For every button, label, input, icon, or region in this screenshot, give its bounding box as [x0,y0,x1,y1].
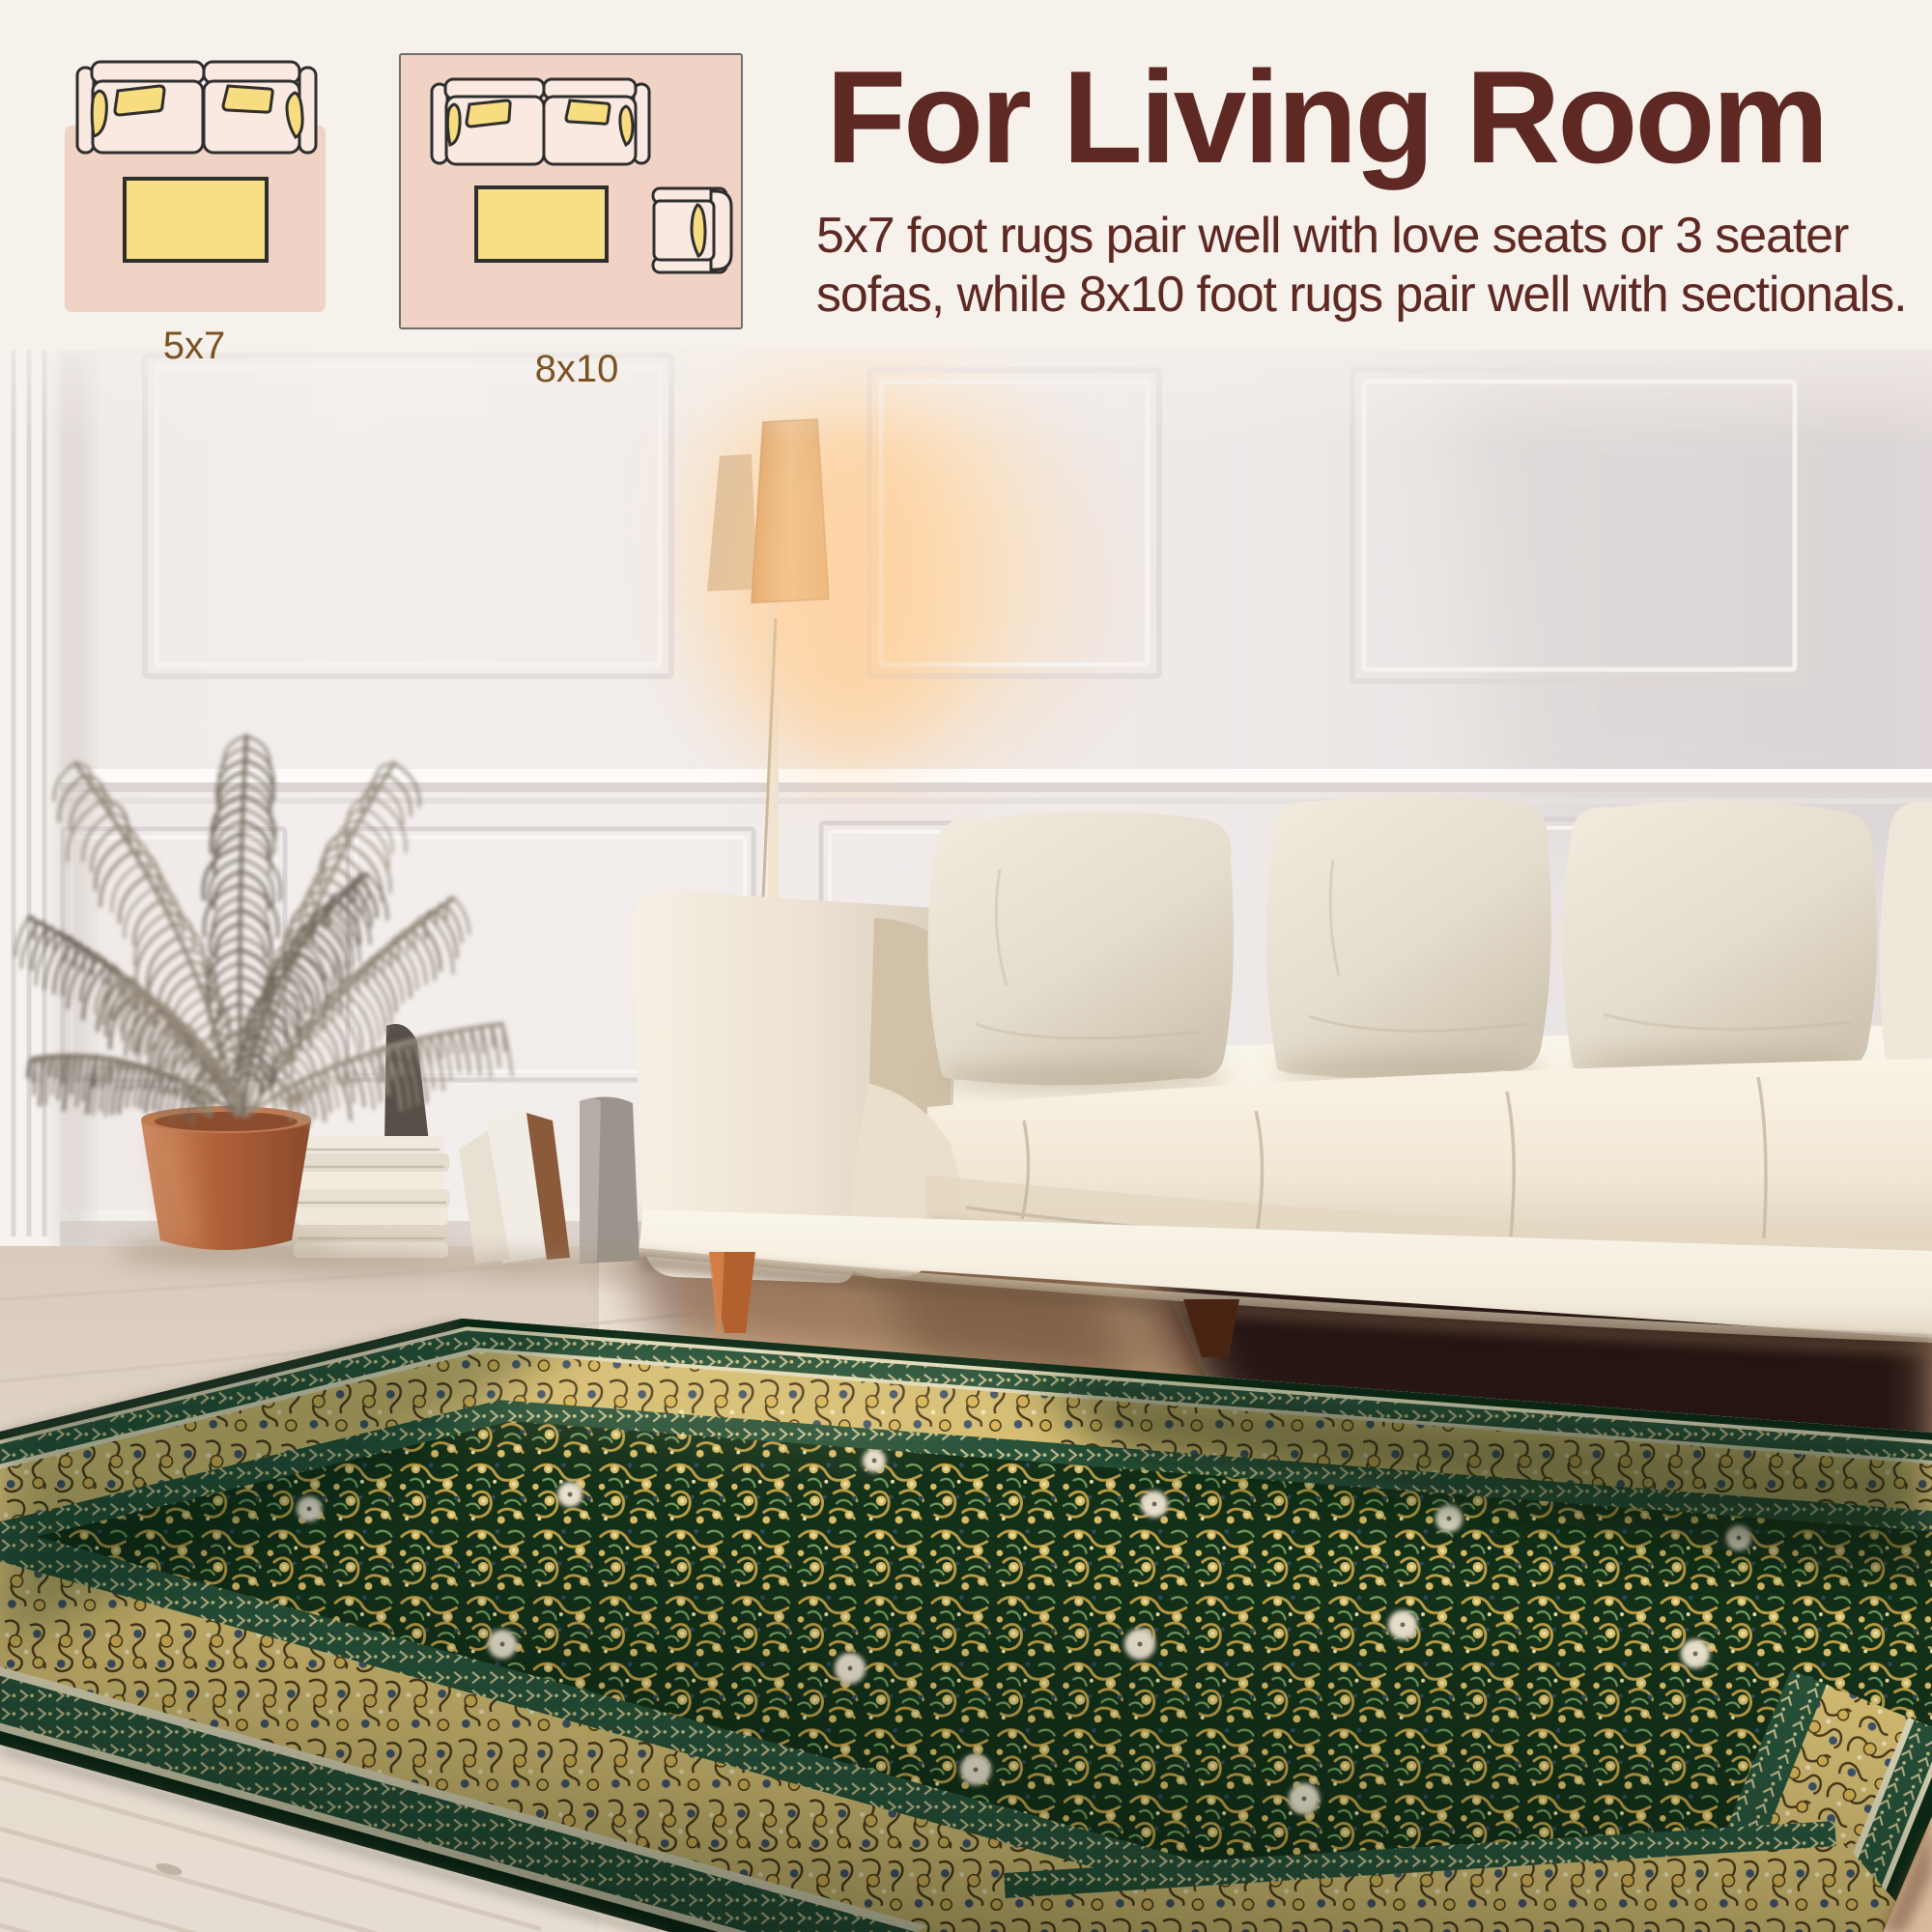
svg-text:5x7: 5x7 [163,325,226,367]
svg-text:8x10: 8x10 [535,348,619,390]
svg-text:For Living Room: For Living Room [826,43,1826,190]
svg-text:5x7 foot rugs pair well with l: 5x7 foot rugs pair well with love seats … [816,208,1849,264]
svg-text:sofas, while 8x10 foot rugs pa: sofas, while 8x10 foot rugs pair well wi… [816,267,1907,323]
